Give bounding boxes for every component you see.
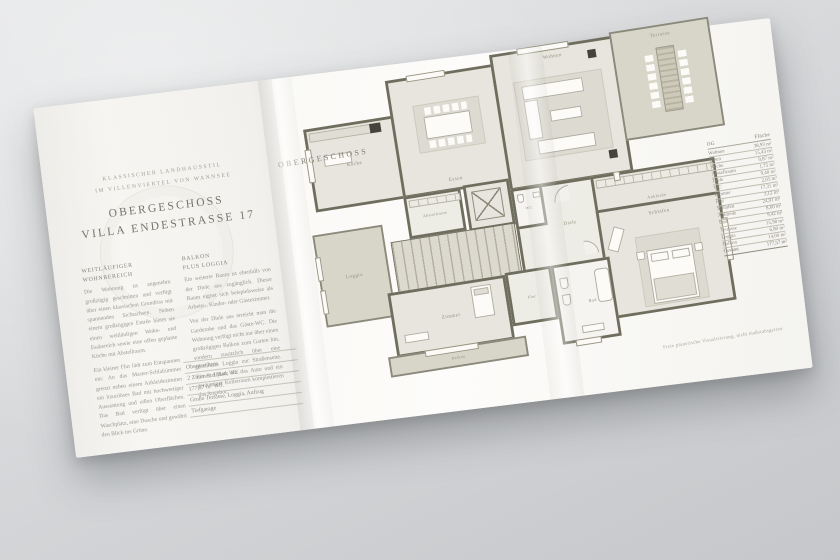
area-table-header-right: Fläche [754, 132, 770, 140]
storage-shelf [408, 193, 461, 208]
nightstand [636, 251, 646, 261]
washbasin-icon [582, 322, 605, 333]
photo-backdrop: KLASSISCHER LANDHAUSSTIL IM VILLENVIERTE… [0, 0, 840, 560]
elevator-icon [471, 187, 505, 221]
room-label-zimmer: Zimmer [441, 312, 461, 320]
column1-paragraph-2: Ein kleiner Flur lädt zum Entspannen ein… [93, 357, 188, 441]
room-label-kueche: Küche [347, 160, 363, 168]
room-label-terrasse: Terrasse [649, 30, 670, 39]
room-label-balkon: Balkon [451, 353, 466, 360]
speaker-icon [609, 149, 619, 159]
area-total-label: Gesamt [723, 247, 739, 254]
toilet-icon [517, 194, 525, 203]
room-terrasse: Terrasse [609, 17, 725, 141]
pillow-icon [650, 251, 669, 262]
column1-paragraph-1: Die Wohnung ist angenehm großzügig gesch… [84, 279, 179, 363]
room-label-bad: Bad [588, 297, 597, 303]
desk [404, 331, 429, 343]
chaise-longue [608, 226, 625, 252]
room-label-loggia: Loggia [346, 272, 364, 280]
bed [646, 243, 700, 304]
room-wohnen: Wohnen [489, 36, 634, 191]
room-label-flur: Flur [527, 293, 536, 299]
blanket-icon [653, 272, 697, 300]
area-table-header-left: OG [706, 141, 715, 148]
single-bed [470, 284, 495, 318]
floor-plan: Küche Essen Wohnen [288, 16, 761, 390]
brochure-left-panel: KLASSISCHER LANDHAUSSTIL IM VILLENVIERTE… [33, 79, 314, 458]
room-label-schlafen: Schlafen [648, 207, 670, 216]
fireplace-icon [587, 49, 597, 59]
area-row-label: Bad [719, 220, 728, 226]
room-label-ankleide: Ankleide [647, 192, 667, 200]
toilet-icon [559, 277, 569, 289]
column-wohnbereich: WEITLÄUFIGER WOHNBEREICH Die Wohnung ist… [81, 257, 189, 445]
room-flur: Flur [505, 266, 559, 327]
door-gap [613, 171, 621, 181]
room-label-abstellraum: Abstellraum [423, 209, 448, 217]
column2-paragraph-1: Ein weiterer Raum ist ebenfalls von der … [184, 266, 275, 313]
bidet-icon [562, 294, 572, 306]
room-wc: WC [510, 184, 548, 229]
room-bad: Bad [551, 257, 622, 345]
door-arc-icon [552, 185, 570, 203]
body-columns: WEITLÄUFIGER WOHNBEREICH Die Wohnung ist… [81, 245, 289, 446]
door-arc-icon [583, 239, 599, 255]
room-label-wc: WC [525, 204, 533, 210]
stove-icon [369, 122, 381, 133]
sink-icon [532, 191, 540, 198]
room-label-wohnen: Wohnen [542, 52, 562, 61]
area-total-value: 177,57 m² [767, 240, 788, 248]
room-label-essen: Essen [448, 175, 463, 183]
room-schlafen: Schlafen [596, 191, 737, 319]
area-row-label: Flur [716, 199, 725, 205]
room-kueche: Küche [303, 116, 406, 213]
area-row-label: WC [713, 185, 722, 191]
pillow-icon [671, 248, 690, 259]
nightstand [694, 242, 704, 252]
brochure: KLASSISCHER LANDHAUSSTIL IM VILLENVIERTE… [33, 18, 812, 458]
pillow-icon [473, 287, 489, 296]
room-label-diele: Diele [563, 219, 577, 227]
